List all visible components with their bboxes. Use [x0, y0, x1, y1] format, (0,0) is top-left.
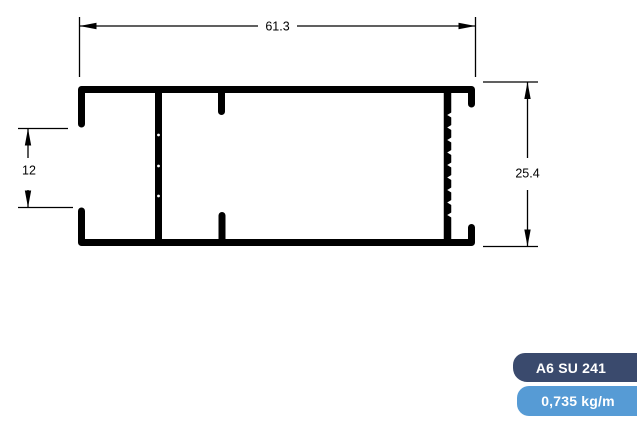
- divider-mark-dot: [157, 134, 160, 137]
- profile-code-badge: A6 SU 241: [513, 353, 637, 382]
- profile-outline: [82, 87, 472, 245]
- opening-dimension: 12: [18, 129, 73, 208]
- height-dimension: 25.4: [483, 82, 540, 247]
- arrowhead-right-icon: [459, 23, 476, 29]
- profile-code-label: A6 SU 241: [536, 360, 606, 376]
- arrowhead-left-icon: [80, 23, 97, 29]
- arrowhead-down-icon: [25, 191, 31, 208]
- arrowhead-down-icon: [524, 230, 530, 247]
- serration-notches: [447, 112, 452, 218]
- profile-bottom-wall-and-hooks: [82, 211, 472, 243]
- width-dimension-value: 61.3: [265, 20, 289, 34]
- opening-dimension-value: 12: [22, 164, 36, 178]
- divider-mark-dot: [157, 165, 160, 168]
- arrowhead-up-icon: [25, 129, 31, 146]
- divider-mark-dot: [157, 195, 160, 198]
- width-dimension: 61.3: [80, 17, 476, 77]
- profile-top-wall-and-hooks: [82, 90, 472, 125]
- weight-badge: 0,735 kg/m: [517, 386, 637, 416]
- weight-label: 0,735 kg/m: [541, 393, 615, 409]
- technical-drawing-page: 61.3 25.4 12 A6 SU 241 0,735 kg/m: [0, 0, 637, 421]
- arrowhead-up-icon: [524, 82, 530, 99]
- height-dimension-value: 25.4: [515, 167, 539, 181]
